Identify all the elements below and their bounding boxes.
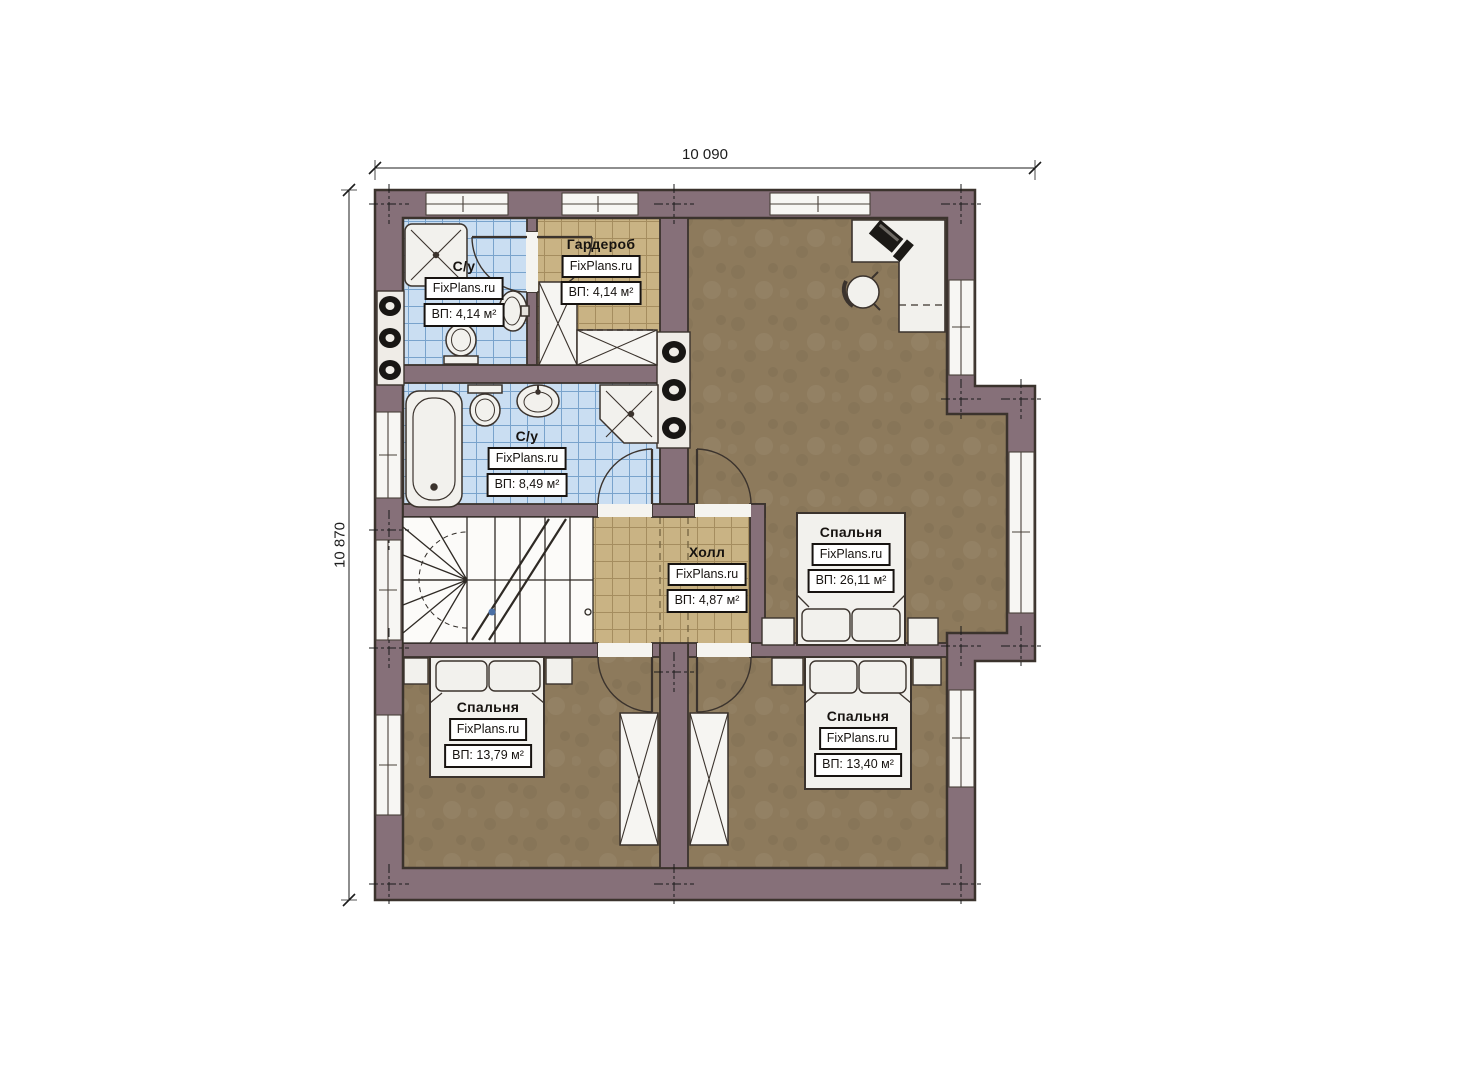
staircase — [403, 517, 593, 643]
room-name: С/у — [487, 428, 568, 444]
window — [376, 540, 401, 640]
room-area: ВП: 8,49 м² — [487, 473, 568, 496]
brand-watermark: FixPlans.ru — [488, 447, 567, 470]
nightstand-icon — [546, 658, 572, 684]
room-name: Спальня — [814, 708, 902, 724]
window — [949, 690, 974, 787]
nightstand-icon — [913, 658, 941, 685]
wardrobe-cabinet-icon — [620, 713, 658, 845]
window — [562, 193, 638, 215]
room-label-bedroom-master: Спальня FixPlans.ru ВП: 26,11 м² — [808, 524, 895, 593]
room-label-bath-top: С/у FixPlans.ru ВП: 4,14 м² — [424, 258, 505, 327]
nightstand-icon — [772, 658, 803, 685]
window — [770, 193, 870, 215]
room-name: Гардероб — [561, 236, 642, 252]
brand-watermark: FixPlans.ru — [819, 727, 898, 750]
bathtub-icon — [406, 391, 462, 507]
brand-watermark: FixPlans.ru — [812, 543, 891, 566]
room-label-bath-main: С/у FixPlans.ru ВП: 8,49 м² — [487, 428, 568, 497]
room-name: Спальня — [444, 699, 532, 715]
room-name: Холл — [667, 544, 748, 560]
wardrobe-cabinet-icon — [690, 713, 728, 845]
vent-shaft-center — [657, 332, 690, 448]
nightstand-icon — [908, 618, 938, 645]
brand-watermark: FixPlans.ru — [562, 255, 641, 278]
window — [426, 193, 508, 215]
brand-watermark: FixPlans.ru — [425, 277, 504, 300]
toilet-icon — [444, 324, 478, 364]
brand-watermark: FixPlans.ru — [449, 718, 528, 741]
shower-icon — [600, 385, 658, 443]
toilet-icon — [468, 385, 502, 426]
vent-shaft-left — [377, 291, 404, 385]
window — [376, 715, 401, 815]
dimension-height-label: 10 870 — [332, 522, 349, 568]
room-area: ВП: 4,14 м² — [424, 303, 505, 326]
sink-icon — [517, 385, 559, 417]
room-area: ВП: 13,79 м² — [444, 744, 532, 767]
dimension-top — [369, 160, 1041, 180]
room-area: ВП: 4,87 м² — [667, 589, 748, 612]
room-label-bedroom-left: Спальня FixPlans.ru ВП: 13,79 м² — [444, 699, 532, 768]
dimension-width-label: 10 090 — [682, 146, 728, 163]
room-name: Спальня — [808, 524, 895, 540]
room-area: ВП: 4,14 м² — [561, 281, 642, 304]
floor-plan-page: 10 090 10 870 С/у FixPlans.ru ВП: 4,14 м… — [0, 0, 1473, 1080]
room-name: С/у — [424, 258, 505, 274]
wardrobe-cabinet-icon — [577, 330, 657, 365]
window — [949, 280, 974, 375]
window — [376, 412, 401, 498]
floor-plan-drawing — [0, 0, 1473, 1080]
room-area: ВП: 13,40 м² — [814, 753, 902, 776]
brand-watermark: FixPlans.ru — [668, 563, 747, 586]
nightstand-icon — [404, 658, 428, 684]
room-label-wardrobe: Гардероб FixPlans.ru ВП: 4,14 м² — [561, 236, 642, 305]
room-area: ВП: 26,11 м² — [808, 569, 895, 592]
room-label-hall: Холл FixPlans.ru ВП: 4,87 м² — [667, 544, 748, 613]
room-label-bedroom-right: Спальня FixPlans.ru ВП: 13,40 м² — [814, 708, 902, 777]
nightstand-icon — [762, 618, 794, 645]
window — [1009, 452, 1034, 613]
